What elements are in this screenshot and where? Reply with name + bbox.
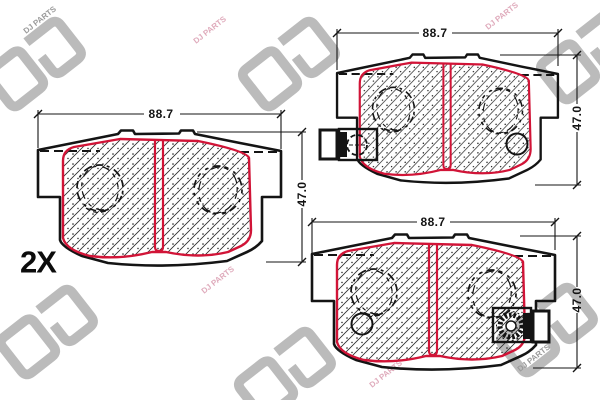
width-dimension-label-bottom-right-pad: 88.7 xyxy=(421,216,446,228)
width-dimension-label-top-right-pad: 88.7 xyxy=(423,27,448,39)
pad-bottom-right-view xyxy=(312,235,555,370)
dj-parts-watermark-text: DJ PARTS xyxy=(200,264,237,295)
height-dimension-label-top-right-pad: 47.0 xyxy=(571,106,583,131)
pad-top-right-view xyxy=(337,55,558,183)
quantity-label: 2X xyxy=(20,247,56,278)
dj-parts-watermark-text: DJ PARTS xyxy=(484,0,521,31)
dj-logo-icon xyxy=(0,287,96,377)
dj-logo-icon xyxy=(0,19,84,109)
dj-parts-watermark-text: DJ PARTS xyxy=(368,358,405,389)
dj-parts-watermark-text: DJ PARTS xyxy=(192,14,229,45)
height-dimension-label-left-pad: 47.0 xyxy=(296,182,308,207)
dj-logo-icon xyxy=(538,12,600,102)
dj-logo-icon xyxy=(236,329,333,400)
technical-drawing-page: DJ PARTS DJ PARTS DJ PARTS DJ PARTS DJ P… xyxy=(0,0,600,400)
height-dimension-label-bottom-right-pad: 47.0 xyxy=(571,288,583,313)
dj-logo-icon xyxy=(240,19,337,109)
width-dimension-label-left-pad: 88.7 xyxy=(149,108,174,120)
pad-left-view xyxy=(38,131,281,266)
